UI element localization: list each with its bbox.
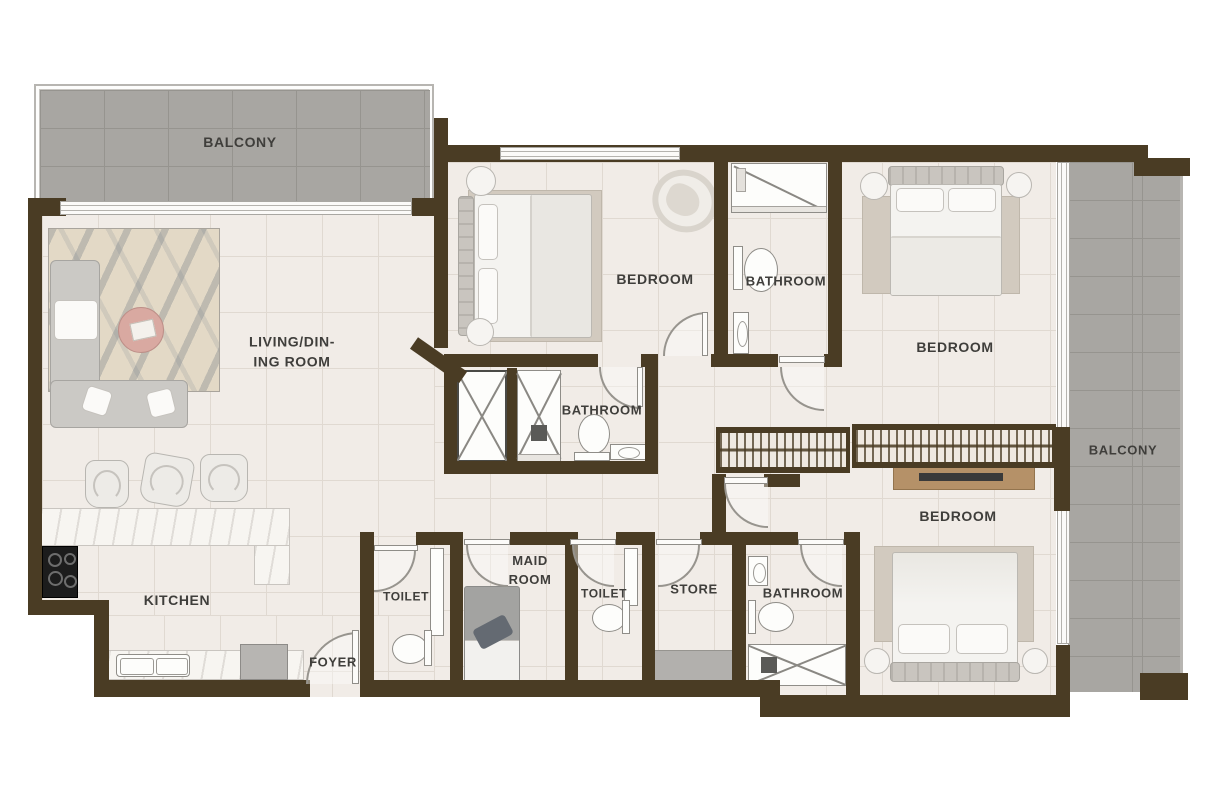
kitchen-counter-return — [254, 545, 290, 585]
room-label-bathroom-mid: BATHROOM — [562, 402, 642, 421]
bedroom-bottom-door — [724, 477, 768, 484]
wall — [700, 532, 798, 545]
wall — [450, 532, 463, 697]
room-label-kitchen: KITCHEN — [144, 590, 210, 610]
wall — [714, 145, 728, 367]
balcony-right-tiles — [1068, 162, 1142, 692]
wall — [846, 532, 860, 702]
room-label-store: STORE — [670, 581, 718, 600]
wall — [360, 532, 374, 697]
bed-pillow — [896, 188, 944, 212]
wall — [732, 532, 746, 697]
shower-closet — [517, 370, 561, 462]
wall — [645, 354, 658, 474]
bathroom-sink — [610, 444, 646, 460]
room-label-bedroom-bottom: BEDROOM — [919, 506, 996, 526]
bed-pillow — [948, 188, 996, 212]
toilet-left-door — [374, 545, 418, 551]
toilet-bowl — [392, 634, 428, 664]
nightstand — [466, 166, 496, 196]
floor-plan: BALCONY LIVING/DIN- ING ROOM BEDROOM BAT… — [0, 0, 1218, 786]
wall — [434, 118, 448, 348]
balcony-right-railing — [1180, 162, 1183, 673]
store-door — [656, 539, 702, 545]
dining-stool — [85, 460, 129, 508]
bed-pillow — [898, 624, 950, 654]
bed-pillow — [478, 268, 498, 324]
bed-pillow — [956, 624, 1008, 654]
bathroom-sink — [748, 556, 768, 586]
bed-headboard — [458, 196, 474, 336]
shower — [731, 163, 827, 213]
wall — [507, 368, 517, 462]
room-label-foyer: FOYER — [309, 654, 357, 673]
toilet-bowl — [592, 604, 626, 632]
bathroom-top-door — [779, 356, 825, 363]
bedroom-right-window — [1057, 162, 1070, 644]
dining-stool — [200, 454, 248, 502]
nightstand — [860, 172, 888, 200]
toilet — [733, 246, 743, 290]
balcony-right-tiles-outer — [1142, 162, 1182, 673]
bathroom-bottom-door — [798, 539, 844, 545]
fridge — [240, 644, 288, 680]
room-label-balcony-top: BALCONY — [203, 132, 276, 152]
wall — [764, 474, 800, 487]
room-label-toilet-right: TOILET — [581, 585, 627, 602]
store-shelf — [654, 650, 736, 684]
bed-blanket — [530, 195, 590, 337]
wall — [828, 145, 842, 367]
wall — [510, 532, 572, 545]
kitchen-sink — [116, 654, 190, 677]
wall — [1140, 673, 1188, 700]
wardrobe — [852, 424, 1056, 468]
dining-stool — [138, 451, 196, 509]
room-label-living-line2: ING ROOM — [249, 352, 335, 372]
wall — [1054, 427, 1070, 511]
service-shaft — [457, 370, 507, 462]
room-label-bathroom-bottom: BATHROOM — [763, 585, 843, 604]
wall — [444, 354, 457, 474]
bedroom-top-window — [500, 147, 680, 160]
bed-pillow — [478, 204, 498, 260]
maid-room-door — [464, 539, 510, 545]
wall — [776, 695, 1062, 717]
nightstand — [1022, 648, 1048, 674]
kitchen-counter — [40, 508, 290, 546]
bathroom-sink — [733, 312, 749, 354]
room-label-living-line1: LIVING/DIN- — [249, 332, 335, 352]
vanity — [430, 548, 444, 636]
stove — [42, 546, 78, 598]
wall — [94, 680, 310, 697]
room-label-maid-line1: MAID — [509, 552, 552, 571]
room-label-bedroom-top: BEDROOM — [616, 269, 693, 289]
room-label-toilet-left: TOILET — [383, 588, 429, 605]
wall — [642, 532, 655, 697]
bed-headboard — [890, 662, 1020, 682]
room-label-bathroom-top: BATHROOM — [746, 273, 826, 292]
tv — [919, 473, 1003, 481]
wall — [1056, 645, 1070, 717]
toilet-tank — [574, 452, 610, 461]
wall — [28, 198, 42, 615]
coffee-table — [118, 307, 164, 353]
coffee-table-book — [129, 319, 156, 342]
living-balcony-window — [60, 201, 412, 215]
room-label-maid-room: MAID ROOM — [509, 552, 552, 590]
room-label-balcony-right: BALCONY — [1089, 442, 1157, 461]
toilet-tank — [622, 600, 630, 634]
toilet-tank — [748, 600, 756, 634]
wall — [444, 461, 658, 474]
room-label-bedroom-right: BEDROOM — [916, 337, 993, 357]
sofa-blanket — [54, 300, 98, 340]
toilet-right-door — [570, 539, 616, 545]
bed-headboard — [888, 166, 1004, 186]
room-label-maid-line2: ROOM — [509, 571, 552, 590]
bed-duvet — [891, 236, 1001, 295]
nightstand — [466, 318, 494, 346]
wardrobe — [716, 427, 850, 473]
single-bed — [464, 586, 520, 682]
room-label-living-dining: LIVING/DIN- ING ROOM — [249, 332, 335, 373]
wall — [444, 354, 598, 367]
wall — [1134, 158, 1190, 176]
toilet-tank — [424, 630, 432, 666]
toilet-bowl — [758, 602, 794, 632]
nightstand — [1006, 172, 1032, 198]
nightstand — [864, 648, 890, 674]
bedroom-top-door — [702, 312, 708, 356]
